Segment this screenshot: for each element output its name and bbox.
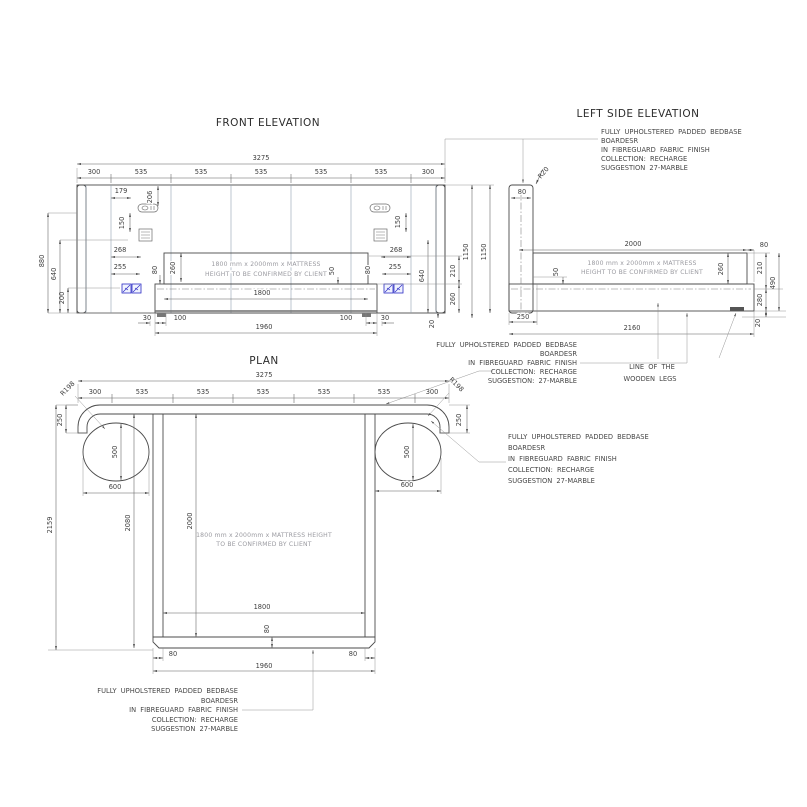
dim-text: 500 [111, 446, 119, 459]
dim-text: 535 [136, 388, 149, 396]
dim-text: 535 [195, 168, 208, 176]
dim-text: 20 [428, 320, 436, 328]
switch-icon [370, 204, 390, 212]
dim-text: R20 [536, 165, 550, 180]
mattress-note-line1: 1800 mm x 2000mm x MATTRESS [587, 260, 696, 267]
plan-dimensions: 3275 300 535 535 535 535 535 300 R198 R1… [46, 371, 470, 674]
side-right-extension-lines [742, 250, 786, 317]
dim-text: 80 [364, 266, 372, 274]
dim-text: 1960 [256, 662, 273, 670]
dim-text: 535 [135, 168, 148, 176]
dim-text: 535 [257, 388, 270, 396]
dim-text: 80 [151, 266, 159, 274]
dim-text: 3275 [256, 371, 273, 379]
dim-text: 80 [169, 650, 177, 658]
dim-text: 50 [552, 268, 560, 276]
plan-title: PLAN [249, 355, 278, 367]
dim-text: 30 [143, 314, 151, 322]
dim-text: R198 [448, 376, 466, 394]
dim-text: 100 [340, 314, 353, 322]
dim-text: 150 [118, 217, 126, 230]
switch-icon [138, 204, 158, 212]
dim-text: 3275 [253, 154, 270, 162]
note-line: BOARDESR [540, 350, 577, 358]
dim-text: R198 [59, 380, 77, 398]
side-elevation-shape: 1800 mm x 2000mm x MATTRESS HEIGHT TO BE… [509, 185, 754, 313]
plan-view: PLAN 1800 mm x 2000mm x MATTRESS HEIGHT … [46, 355, 649, 733]
dim-text: 300 [426, 388, 439, 396]
side-elevation-title: LEFT SIDE ELEVATION [576, 108, 699, 120]
dim-text: 880 [38, 255, 46, 268]
headboard-left-return-panel [77, 185, 86, 313]
dim-text: 1150 [480, 244, 488, 261]
note-line: SUGGESTION: 27-MARBLE [488, 377, 577, 385]
drawing-canvas: FRONT ELEVATION 1800 mm x 2000mm x MATTR… [0, 0, 807, 807]
dim-text: 535 [315, 168, 328, 176]
note-line: SUGGESTION 27-MARBLE [508, 477, 595, 485]
dim-text: 1960 [256, 323, 273, 331]
bed-leg [157, 313, 166, 317]
dim-text: 2080 [124, 515, 132, 532]
dim-text: 535 [375, 168, 388, 176]
note-line: COLLECTION: RECHARGE [491, 368, 577, 376]
note-line: IN FIBREGUARD FABRIC FINISH [508, 455, 617, 463]
note-line: SUGGESTION 27-MARBLE [151, 725, 238, 733]
wooden-legs-note: LINE OF THE WOODEN LEGS [623, 303, 736, 383]
mattress-note-line1: 1800 mm x 2000mm x MATTRESS [211, 261, 320, 268]
dim-text: 20 [754, 319, 762, 327]
bed-rail-right [365, 414, 375, 637]
dim-text: 268 [114, 246, 127, 254]
dim-text: 268 [390, 246, 403, 254]
dim-text: 260 [449, 293, 457, 306]
headboard-plan [78, 405, 449, 433]
dim-text: 2160 [624, 324, 641, 332]
note-line: COLLECTION: RECHARGE [508, 466, 594, 474]
dim-text: 535 [197, 388, 210, 396]
dim-text: 80 [263, 625, 271, 633]
dim-text: 50 [328, 267, 336, 275]
front-elevation-title: FRONT ELEVATION [216, 117, 320, 129]
note-line: IN FIBREGUARD FABRIC FINISH [129, 706, 238, 714]
dim-text: 80 [518, 188, 526, 196]
dim-text: 210 [756, 262, 764, 275]
dim-text: 2000 [186, 513, 194, 530]
bedbase-side [509, 284, 754, 311]
plan-bottom-extension-lines [153, 648, 375, 674]
socket-plate-icon [374, 229, 387, 241]
note-line: SUGGESTION 27-MARBLE [601, 164, 688, 172]
mattress-note-line2: HEIGHT TO BE CONFIRMED BY CLIENT [205, 271, 327, 278]
power-outlet-icon [384, 284, 403, 293]
note-line: FULLY UPHOLSTERED PADDED BEDBASE [436, 341, 577, 349]
side-elevation-note: FULLY UPHOLSTERED PADDED BEDBASE BOARDES… [445, 128, 742, 183]
headboard-right-return-panel [436, 185, 445, 313]
dim-text: 300 [88, 168, 101, 176]
note-line: FULLY UPHOLSTERED PADDED BEDBASE [601, 128, 742, 136]
note-line: FULLY UPHOLSTERED PADDED BEDBASE [508, 433, 649, 441]
front-elevation-view: FRONT ELEVATION 1800 mm x 2000mm x MATTR… [38, 117, 494, 336]
dim-text: 179 [115, 187, 128, 195]
dim-text: 535 [378, 388, 391, 396]
dim-text: 600 [109, 483, 122, 491]
bed-leg [362, 313, 371, 317]
note-line: BOARDESR [601, 137, 638, 145]
bed-rail-left [153, 414, 163, 637]
dim-text: 150 [394, 216, 402, 229]
note-line: COLLECTION: RECHARGE [601, 155, 687, 163]
dim-text: 80 [760, 241, 768, 249]
dim-text: 250 [56, 414, 64, 427]
dim-text: 100 [174, 314, 187, 322]
dim-text: 255 [114, 263, 127, 271]
dim-text: 255 [389, 263, 402, 271]
plan-right-note: FULLY UPHOLSTERED PADDED BEDBASE BOARDES… [431, 421, 649, 485]
note-line: FULLY UPHOLSTERED PADDED BEDBASE [97, 687, 238, 695]
dim-text: 30 [381, 314, 389, 322]
dim-text: 200 [58, 292, 66, 305]
plan-bottom-note: FULLY UPHOLSTERED PADDED BEDBASE BOARDES… [97, 650, 313, 733]
dim-text: 600 [401, 481, 414, 489]
note-line: COLLECTION: RECHARGE [152, 716, 238, 724]
dim-text: 250 [517, 313, 530, 321]
dim-text: 206 [146, 191, 154, 204]
power-outlet-icon [122, 284, 141, 293]
dim-text: 80 [349, 650, 357, 658]
mattress-note-line2: HEIGHT TO BE CONFIRMED BY CLIENT [581, 269, 703, 276]
mattress-note-line2: TO BE CONFIRMED BY CLIENT [215, 541, 311, 548]
front-elevation-bed: 1800 mm x 2000mm x MATTRESS HEIGHT TO BE… [155, 253, 377, 317]
technical-drawing-sheet: FRONT ELEVATION 1800 mm x 2000mm x MATTR… [0, 0, 807, 807]
front-elevation-dimensions: 3275 300 535 535 535 535 535 300 880 640… [38, 154, 494, 336]
dim-text: 2000 [625, 240, 642, 248]
dim-text: 1150 [462, 244, 470, 261]
dim-text: 260 [169, 262, 177, 275]
dim-text: 2159 [46, 517, 54, 534]
wooden-leg-mark [730, 307, 744, 311]
dim-text: 300 [89, 388, 102, 396]
dim-text: 260 [717, 263, 725, 276]
dim-text: 535 [318, 388, 331, 396]
dim-text: 500 [403, 446, 411, 459]
socket-plate-icon [139, 229, 152, 241]
dim-text: 250 [455, 414, 463, 427]
note-line: BOARDESR [201, 697, 238, 705]
note-line: IN FIBREGUARD FABRIC FINISH [468, 359, 577, 367]
note-line: WOODEN LEGS [623, 375, 676, 383]
note-line: BOARDESR [508, 444, 545, 452]
note-line: LINE OF THE [629, 363, 675, 371]
dim-text: 640 [50, 268, 58, 281]
mattress-front [164, 253, 368, 284]
dim-text: 1800 [254, 603, 271, 611]
dim-text: 490 [769, 277, 777, 290]
dim-text: 640 [418, 270, 426, 283]
dim-text: 1800 [254, 289, 271, 297]
note-line: IN FIBREGUARD FABRIC FINISH [601, 146, 710, 154]
mattress-note-line1: 1800 mm x 2000mm x MATTRESS HEIGHT [196, 532, 332, 539]
bedbase-foot-plan [153, 637, 375, 648]
dim-text: 535 [255, 168, 268, 176]
dim-text: 210 [449, 265, 457, 278]
plan-shape: 1800 mm x 2000mm x MATTRESS HEIGHT TO BE… [78, 405, 449, 648]
dim-text: 280 [756, 294, 764, 307]
dim-text: 300 [422, 168, 435, 176]
